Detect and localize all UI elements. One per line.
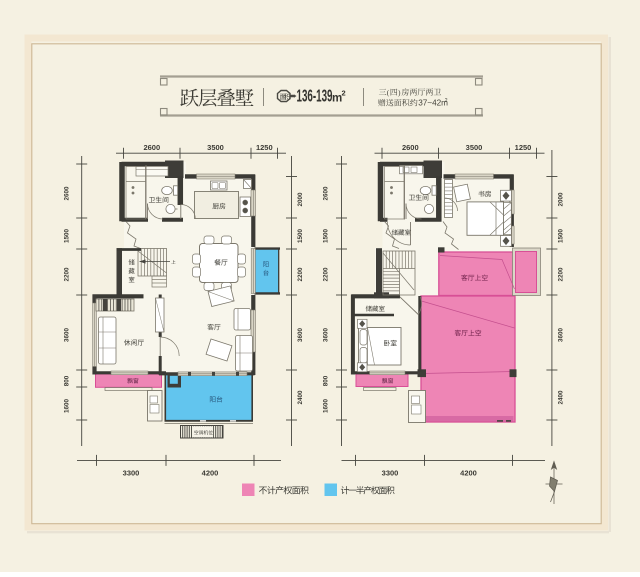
svg-text:3600: 3600 (323, 328, 330, 343)
svg-text:2200: 2200 (297, 267, 304, 282)
svg-text:1600: 1600 (64, 399, 71, 414)
svg-text:1250: 1250 (256, 143, 273, 152)
svg-text:4200: 4200 (202, 469, 219, 478)
svg-text:2600: 2600 (143, 143, 160, 152)
svg-text:2200: 2200 (323, 267, 330, 282)
svg-text:1500: 1500 (297, 229, 304, 244)
svg-text:2200: 2200 (64, 267, 71, 282)
svg-text:2600: 2600 (402, 143, 419, 152)
svg-text:1500: 1500 (323, 229, 330, 244)
svg-text:3300: 3300 (382, 469, 399, 478)
svg-text:1250: 1250 (515, 143, 532, 152)
svg-text:3500: 3500 (207, 143, 224, 152)
svg-text:1600: 1600 (323, 399, 330, 414)
svg-text:2600: 2600 (64, 186, 71, 201)
svg-text:37~42m: 37~42m (418, 98, 448, 107)
svg-text:1500: 1500 (64, 229, 71, 244)
svg-text:800: 800 (323, 375, 330, 386)
svg-text:3600: 3600 (558, 328, 565, 343)
svg-text:3300: 3300 (123, 469, 140, 478)
svg-text:2000: 2000 (558, 192, 565, 207)
svg-text:2: 2 (342, 89, 346, 98)
svg-text:3500: 3500 (466, 143, 483, 152)
svg-text:1500: 1500 (558, 229, 565, 244)
svg-text:3600: 3600 (297, 328, 304, 343)
svg-text:136-139: 136-139 (297, 86, 333, 106)
svg-text:800: 800 (64, 375, 71, 386)
svg-text:2: 2 (445, 98, 448, 104)
svg-text:2600: 2600 (323, 186, 330, 201)
svg-text:2000: 2000 (297, 192, 304, 207)
svg-text:3600: 3600 (64, 328, 71, 343)
svg-text:2400: 2400 (558, 390, 565, 405)
svg-text:2200: 2200 (558, 267, 565, 282)
svg-text:2400: 2400 (297, 390, 304, 405)
svg-text:4200: 4200 (460, 469, 477, 478)
